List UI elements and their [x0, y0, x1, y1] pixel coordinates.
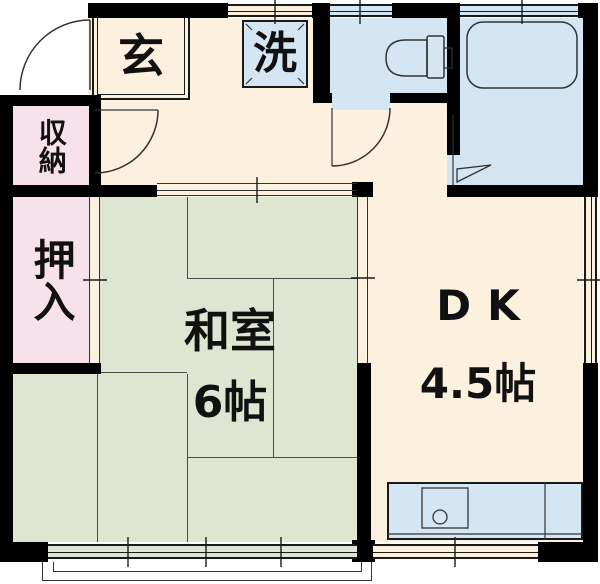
- genkan-label: 玄: [92, 12, 190, 100]
- floor-plan: 玄 洗 収納 押入 和室 6帖 DK 4.5帖: [0, 0, 600, 584]
- wall: [538, 542, 598, 562]
- wall: [313, 3, 330, 103]
- bath-room-area: [447, 18, 583, 185]
- wall: [447, 3, 460, 155]
- tatami-room-area-lower-left: [13, 374, 100, 542]
- tatami-line: [100, 372, 187, 373]
- tatami-line: [187, 278, 357, 279]
- wall: [0, 185, 157, 197]
- kitchen-counter: [387, 482, 583, 540]
- window: [330, 4, 392, 17]
- toilet-door-threshold: [332, 93, 390, 110]
- laundry-label: 洗: [242, 20, 308, 88]
- wall: [583, 363, 598, 562]
- closet-sliding-door: [89, 197, 100, 363]
- toilet-room-area: [330, 18, 447, 93]
- wall: [0, 363, 101, 374]
- dk-size: 4.5帖: [373, 358, 583, 410]
- tatami-room-size: 6帖: [100, 376, 360, 430]
- window: [460, 4, 578, 17]
- wall: [0, 542, 48, 562]
- wall: [447, 185, 583, 197]
- tatami-line: [187, 457, 357, 458]
- tatami-hall-sliding-door: [157, 183, 357, 196]
- closet-label: 押入: [13, 197, 89, 363]
- tatami-line: [187, 197, 188, 278]
- storage-label: 収納: [13, 106, 89, 185]
- wall: [89, 95, 101, 197]
- window: [373, 544, 538, 559]
- tatami-room-area: [100, 197, 357, 542]
- balcony-inner-line: [53, 562, 362, 572]
- tatami-room-label: 和室: [100, 302, 360, 360]
- window: [228, 4, 312, 17]
- wall: [583, 3, 598, 197]
- wall: [0, 95, 13, 562]
- window: [584, 197, 597, 363]
- dk-label: DK: [373, 280, 583, 332]
- tatami-line: [97, 374, 98, 542]
- entrance-door-arc: [20, 20, 90, 90]
- wall: [313, 93, 332, 103]
- wall: [390, 93, 447, 103]
- wall: [0, 95, 101, 106]
- sliding-window-balcony: [48, 544, 357, 559]
